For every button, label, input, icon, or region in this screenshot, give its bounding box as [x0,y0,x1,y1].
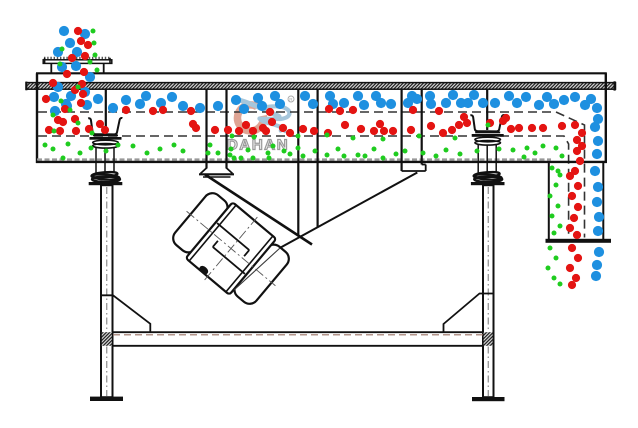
svg-text:DAHAN: DAHAN [227,137,289,154]
